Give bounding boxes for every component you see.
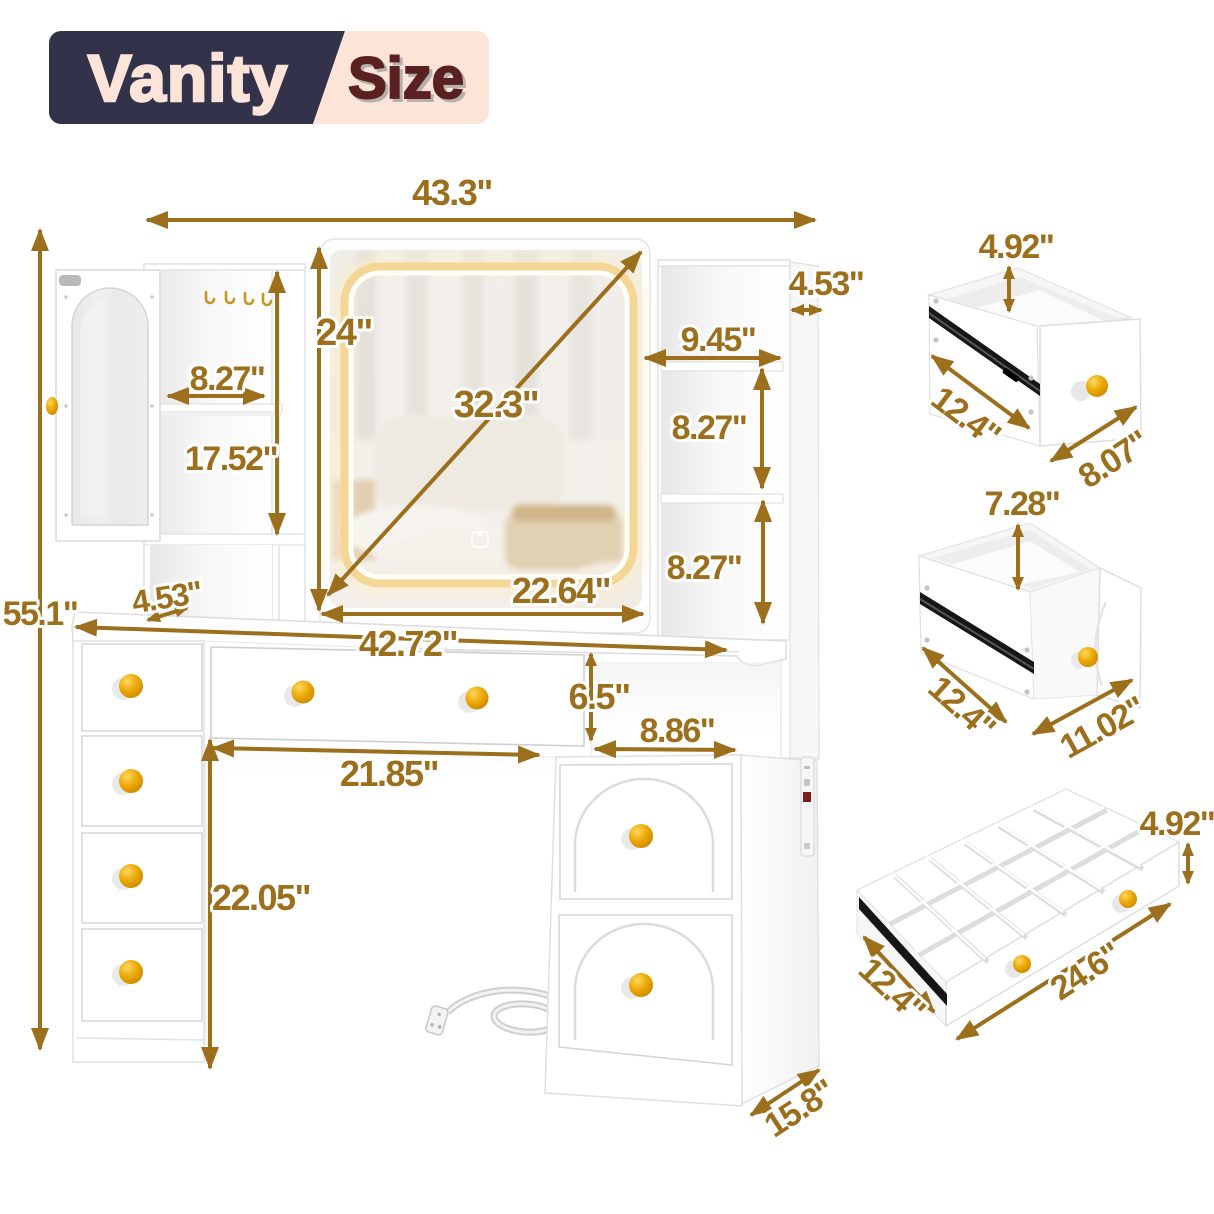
svg-text:8.86": 8.86" — [640, 712, 715, 750]
svg-text:55.1": 55.1" — [3, 595, 78, 633]
svg-text:Size: Size — [348, 46, 464, 111]
svg-text:43.3": 43.3" — [412, 172, 492, 213]
svg-text:Vanity: Vanity — [88, 41, 288, 115]
svg-text:24": 24" — [316, 312, 372, 354]
svg-text:6.5": 6.5" — [568, 676, 629, 717]
svg-text:4.92": 4.92" — [1140, 805, 1214, 843]
svg-text:9.45": 9.45" — [681, 321, 756, 359]
svg-text:8.27": 8.27" — [667, 549, 742, 587]
svg-text:42.72": 42.72" — [359, 623, 457, 664]
svg-text:4.53": 4.53" — [789, 265, 864, 303]
svg-text:21.85": 21.85" — [340, 753, 438, 794]
svg-text:4.92": 4.92" — [979, 228, 1054, 266]
svg-text:22.05": 22.05" — [212, 877, 310, 918]
svg-text:17.52": 17.52" — [185, 440, 277, 478]
svg-text:22.64": 22.64" — [512, 570, 610, 611]
svg-text:7.28": 7.28" — [985, 485, 1060, 523]
svg-text:32.3": 32.3" — [454, 384, 538, 426]
svg-text:8.27": 8.27" — [190, 360, 265, 398]
svg-text:8.27": 8.27" — [672, 409, 747, 447]
